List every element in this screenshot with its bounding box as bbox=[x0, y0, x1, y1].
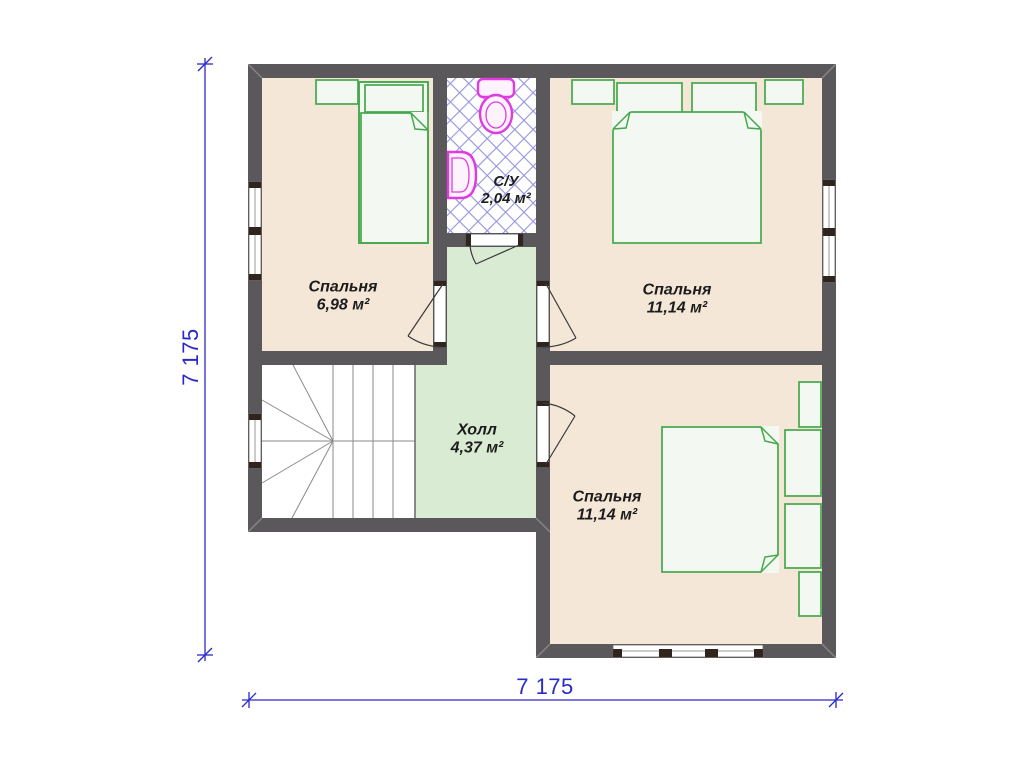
room-name: Спальня bbox=[643, 282, 712, 300]
nightstand bbox=[799, 382, 821, 427]
hall-floor-upper bbox=[447, 247, 536, 365]
room-area: 11,14 м² bbox=[643, 300, 712, 318]
nightstand bbox=[572, 80, 614, 104]
single-bed bbox=[359, 82, 429, 243]
pillow bbox=[365, 85, 423, 112]
pillow bbox=[692, 83, 756, 113]
room-area: 2,04 м² bbox=[481, 190, 530, 207]
room-name: С/У bbox=[481, 173, 530, 190]
wall-mid-horizontal-right bbox=[536, 351, 836, 365]
floor-plan-canvas: Спальня 6,98 м² С/У 2,04 м² Спальня 11,1… bbox=[0, 0, 1024, 768]
nightstand bbox=[765, 80, 803, 104]
nightstand bbox=[799, 572, 821, 616]
window-right-bedroom bbox=[823, 180, 835, 282]
room-area: 6,98 м² bbox=[309, 297, 378, 315]
pillow bbox=[785, 504, 821, 568]
window-left-staircase bbox=[249, 414, 261, 468]
dimension-height-label: 7 175 bbox=[178, 328, 204, 386]
window-left-bedroom bbox=[249, 182, 261, 280]
floor-plan-drawing bbox=[0, 0, 1024, 768]
window-bottom-bedroom bbox=[613, 645, 763, 657]
toilet bbox=[478, 79, 514, 133]
dimension-width-label: 7 175 bbox=[516, 674, 574, 700]
wardrobe bbox=[316, 80, 358, 104]
double-bed bbox=[612, 111, 762, 243]
room-name: Холл bbox=[451, 422, 504, 440]
room-area: 11,14 м² bbox=[573, 507, 642, 525]
room-name: Спальня bbox=[573, 489, 642, 507]
double-bed bbox=[662, 426, 779, 573]
wall-bottom-left bbox=[248, 518, 550, 532]
pillow bbox=[785, 430, 821, 496]
wall-mid-horizontal-left bbox=[248, 351, 447, 365]
pillow bbox=[617, 83, 682, 113]
room-area: 4,37 м² bbox=[451, 440, 504, 458]
room-label-bedroom-top-left: Спальня 6,98 м² bbox=[309, 279, 378, 316]
room-label-bathroom: С/У 2,04 м² bbox=[481, 173, 530, 208]
room-label-hall: Холл 4,37 м² bbox=[451, 422, 504, 459]
room-name: Спальня bbox=[309, 279, 378, 297]
sink bbox=[448, 152, 476, 198]
room-label-bedroom-top-right: Спальня 11,14 м² bbox=[643, 282, 712, 319]
room-label-bedroom-bottom-right: Спальня 11,14 м² bbox=[573, 489, 642, 526]
